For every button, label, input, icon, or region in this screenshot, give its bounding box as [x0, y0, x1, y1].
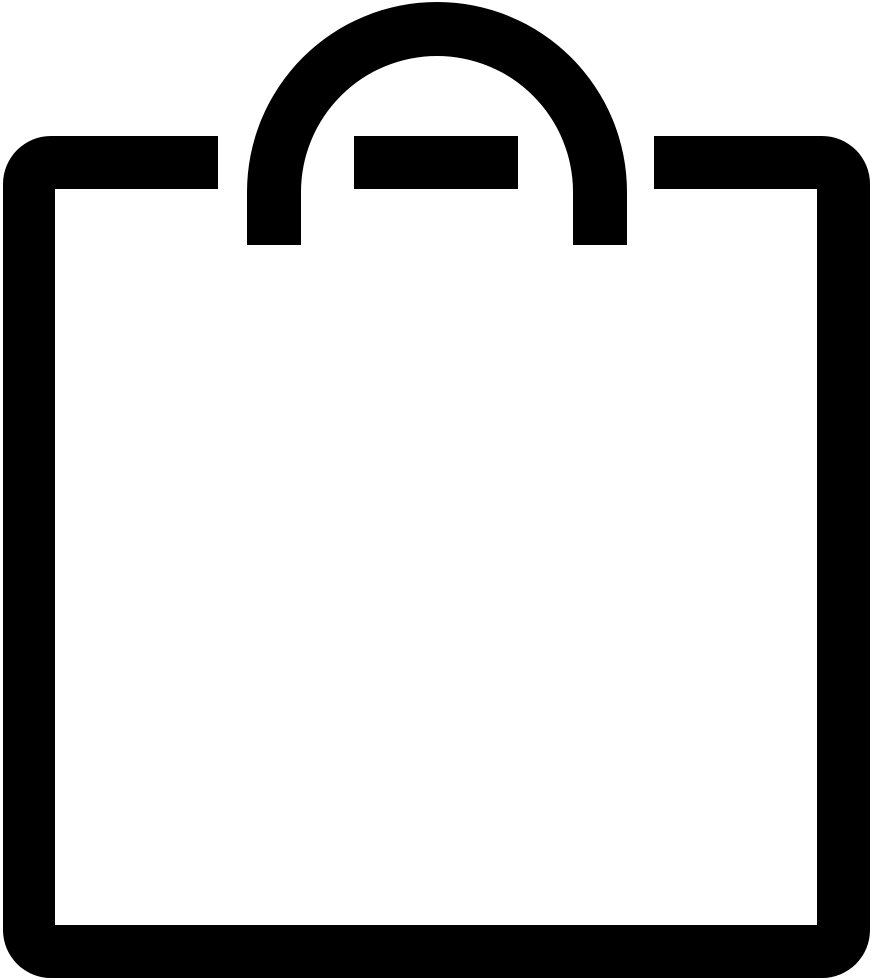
- bag-top-bar-path: [354, 136, 518, 189]
- icon-canvas: [0, 0, 872, 980]
- shopping-bag-icon: [0, 0, 872, 980]
